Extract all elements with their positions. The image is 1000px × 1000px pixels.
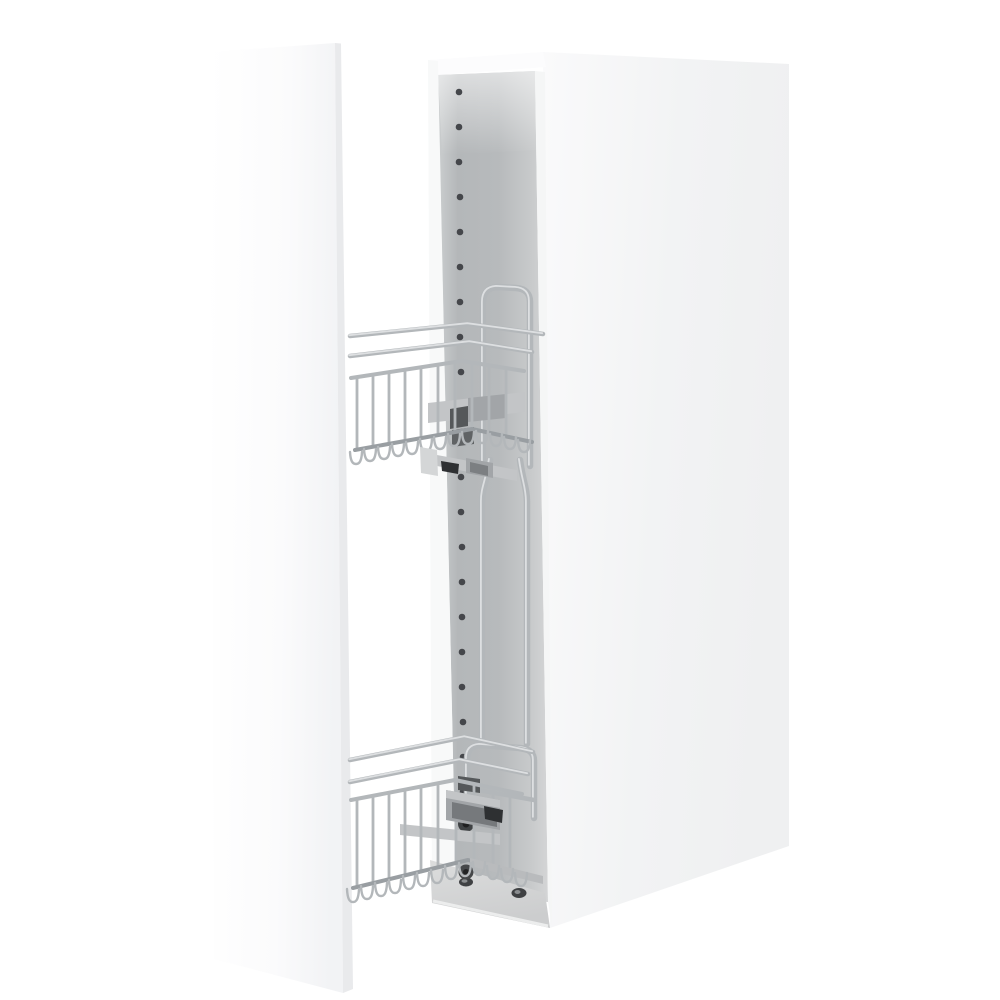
cabinet-right-panel [543, 52, 789, 928]
door-face [210, 43, 343, 993]
door-panel [210, 43, 353, 993]
interior-top-highlight [438, 71, 537, 155]
product-image-page: Варианты сборки: [0, 0, 1000, 1000]
product-photo [0, 0, 1000, 1000]
